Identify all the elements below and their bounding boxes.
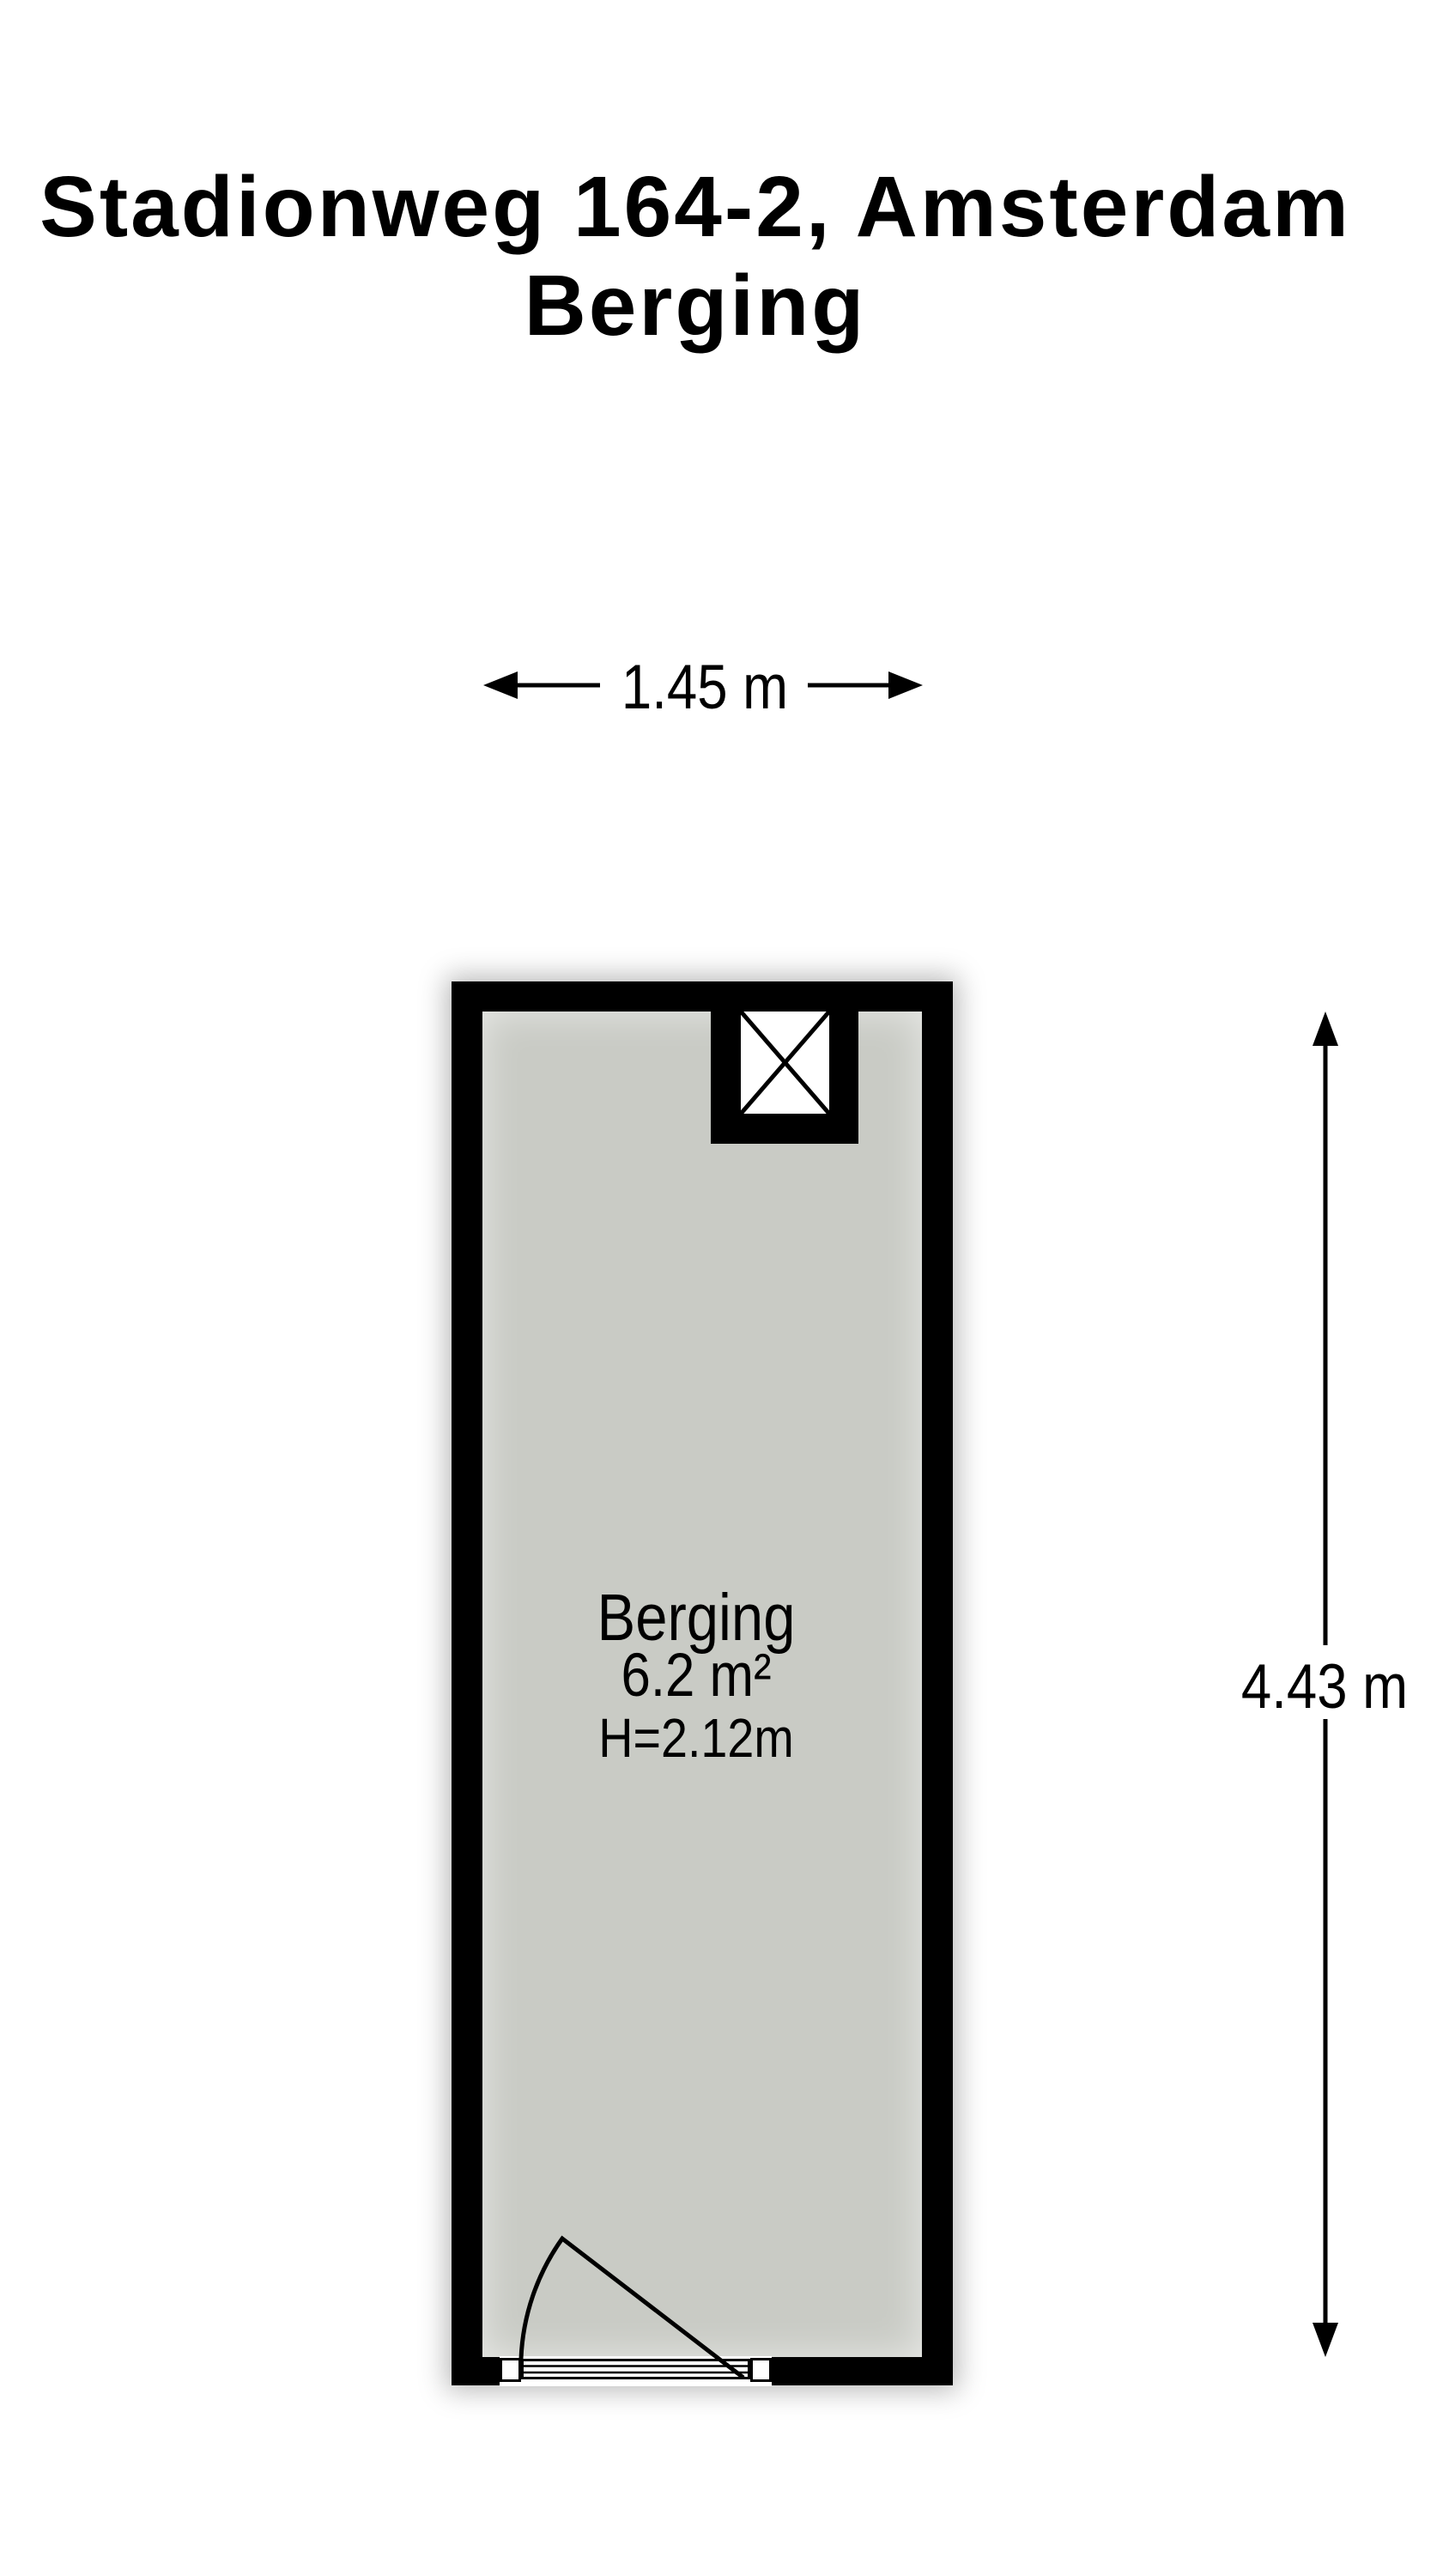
width-arrowhead-right-icon — [888, 671, 923, 699]
door — [500, 2239, 772, 2386]
width-arrowhead-left-icon — [483, 671, 518, 699]
height-dimension-label: 4.43 m — [1241, 1656, 1408, 1718]
width-dimension-label: 1.45 m — [621, 656, 788, 719]
door-threshold — [523, 2360, 749, 2379]
door-jamb-right — [752, 2360, 771, 2381]
room-area-label: 6.2 m² — [621, 1645, 771, 1706]
room-ceiling-height-label: H=2.12m — [598, 1710, 793, 1765]
shaft-symbol — [711, 1012, 858, 1144]
floorplan-page: Stadionweg 164-2, Amsterdam Berging — [0, 0, 1449, 2576]
height-arrowhead-bottom-icon — [1313, 2323, 1338, 2357]
floorplan-overlay — [0, 0, 1449, 2576]
height-arrowhead-top-icon — [1313, 1012, 1338, 1046]
door-jamb-left — [501, 2360, 520, 2381]
